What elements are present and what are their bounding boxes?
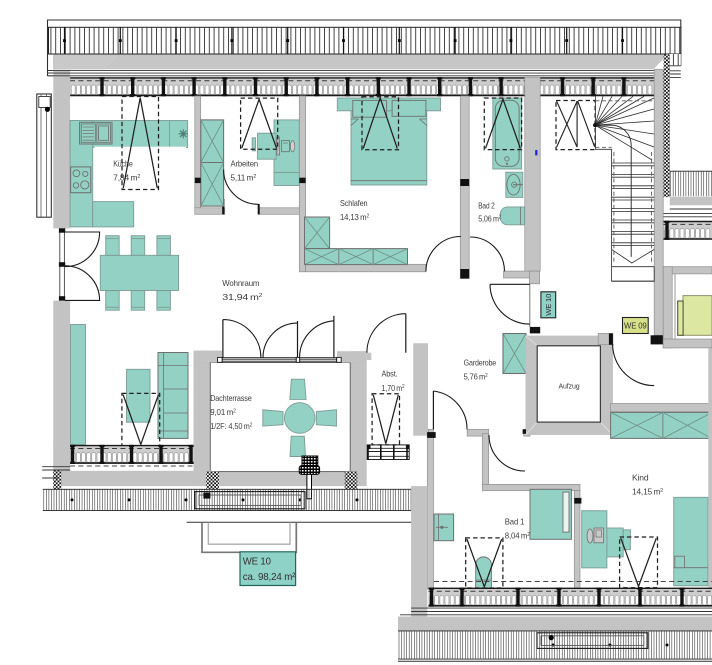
- svg-text:31,94 m2: 31,94 m2: [222, 292, 262, 302]
- svg-text:Wohnraum: Wohnraum: [222, 278, 259, 288]
- svg-text:Küche: Küche: [113, 158, 133, 168]
- svg-text:WE 10: WE 10: [243, 556, 271, 567]
- svg-text:Abst.: Abst.: [382, 369, 398, 379]
- svg-text:Garderobe: Garderobe: [464, 358, 497, 368]
- svg-text:9,01 m2: 9,01 m2: [210, 407, 236, 417]
- svg-text:Bad 2: Bad 2: [478, 200, 495, 210]
- svg-text:5,76 m2: 5,76 m2: [464, 372, 488, 382]
- svg-text:Arbeiten: Arbeiten: [231, 158, 259, 168]
- svg-text:14,15 m2: 14,15 m2: [632, 486, 663, 496]
- svg-text:Aufzug: Aufzug: [559, 382, 580, 391]
- svg-text:Bad 1: Bad 1: [505, 516, 525, 526]
- svg-text:5,06 m2: 5,06 m2: [478, 213, 501, 223]
- svg-text:WE 09: WE 09: [624, 322, 647, 331]
- svg-text:8,04 m2: 8,04 m2: [505, 531, 530, 541]
- svg-text:7,84 m2: 7,84 m2: [113, 173, 140, 183]
- svg-text:Schlafen: Schlafen: [340, 198, 368, 208]
- svg-text:Kind: Kind: [632, 472, 649, 482]
- svg-text:1/2F: 4,50 m2: 1/2F: 4,50 m2: [210, 421, 252, 431]
- svg-text:WE 10: WE 10: [544, 294, 553, 316]
- svg-text:14,13 m2: 14,13 m2: [340, 212, 369, 222]
- svg-text:5,11 m2: 5,11 m2: [231, 173, 257, 183]
- svg-text:Dachterrasse: Dachterrasse: [210, 393, 252, 403]
- svg-text:ca. 98,24 m²: ca. 98,24 m²: [243, 572, 296, 583]
- svg-text:1,70 m2: 1,70 m2: [382, 383, 405, 393]
